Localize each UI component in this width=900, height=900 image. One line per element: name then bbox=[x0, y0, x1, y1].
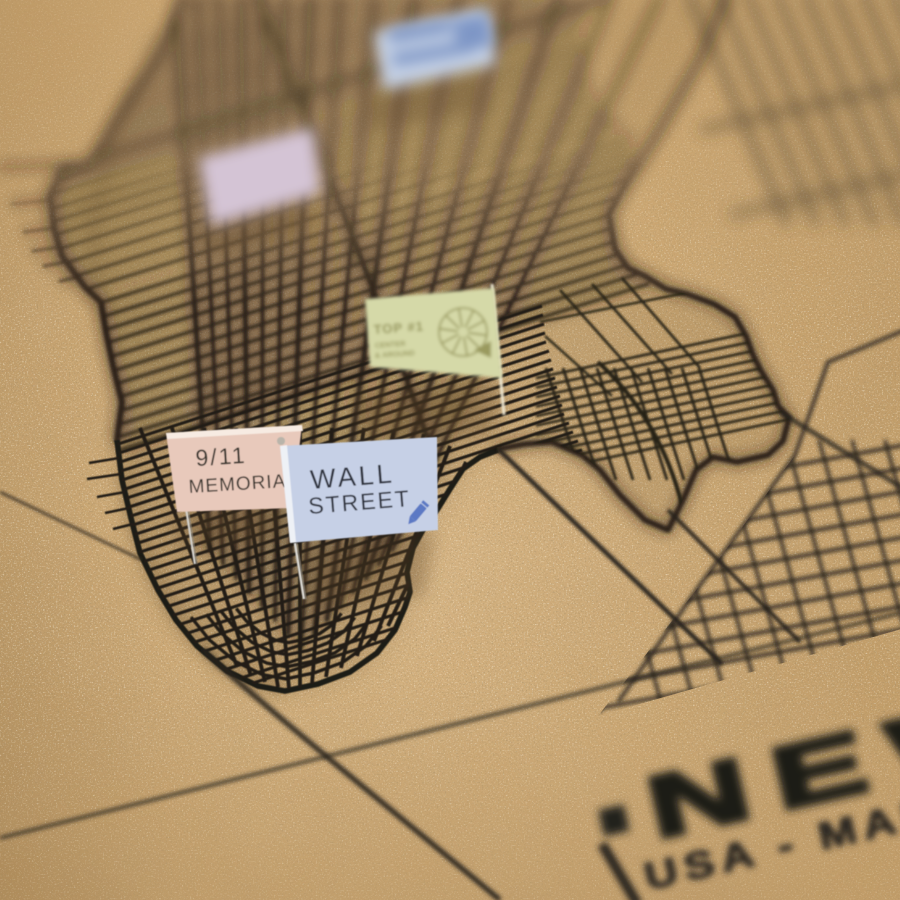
svg-text:9/11: 9/11 bbox=[195, 442, 248, 471]
